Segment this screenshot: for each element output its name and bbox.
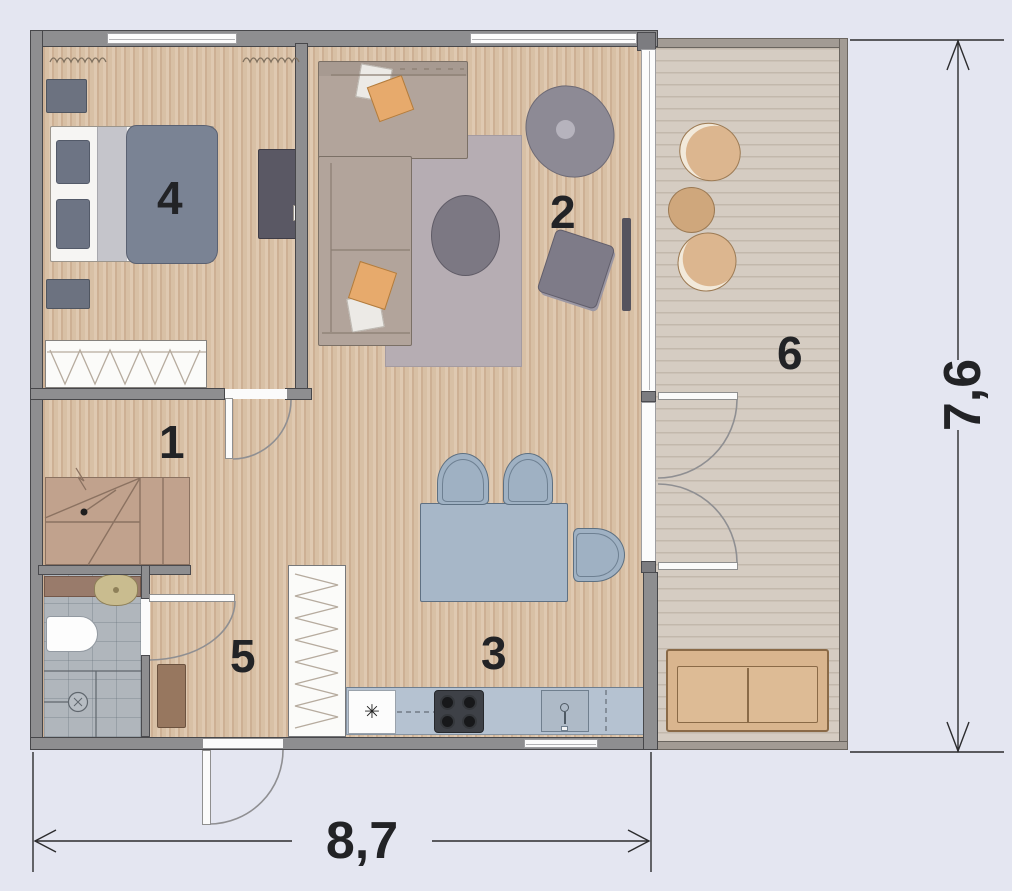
room-label-kitchen: 3 <box>481 630 507 676</box>
sofa-lines <box>322 69 466 333</box>
room-label-bedroom: 4 <box>157 175 183 221</box>
curtain-icon <box>50 58 299 62</box>
linework-overlay <box>0 0 1012 891</box>
terrace-door-arc <box>658 484 737 562</box>
bedroom-door-arc <box>233 400 291 459</box>
bathroom-door-arc <box>150 601 235 660</box>
kitchen-dashed-lines <box>397 690 606 734</box>
entry-door-arc <box>210 750 283 824</box>
room-label-bath-hall: 5 <box>230 633 256 679</box>
room-label-hall: 1 <box>159 419 185 465</box>
terrace-door-arc <box>658 400 737 478</box>
stairs-arrow-dot <box>81 509 88 516</box>
dimension-height-label: 7,6 <box>898 360 1012 430</box>
dimension-width-label: 8,7 <box>292 807 432 875</box>
stairs-lines <box>45 468 163 565</box>
floor-plan: ✳ <box>0 0 1012 891</box>
shower-lines <box>44 671 141 737</box>
room-label-terrace: 6 <box>777 330 803 376</box>
room-label-living: 2 <box>550 189 576 235</box>
